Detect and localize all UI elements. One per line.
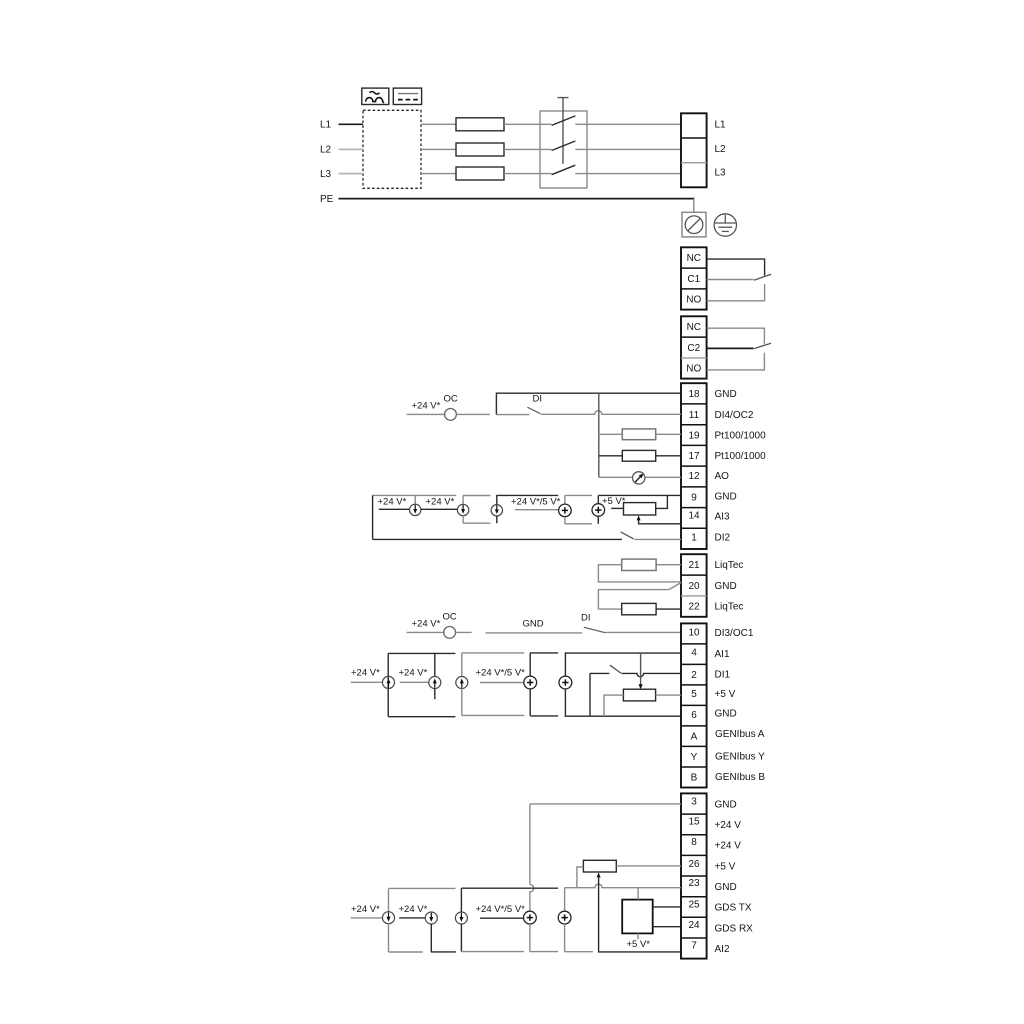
svg-text:20: 20 xyxy=(688,581,700,592)
svg-text:C1: C1 xyxy=(687,274,700,285)
svg-text:AI3: AI3 xyxy=(715,511,730,522)
svg-text:26: 26 xyxy=(688,859,700,870)
svg-text:OC: OC xyxy=(443,612,457,623)
svg-text:GND: GND xyxy=(523,618,544,629)
svg-text:18: 18 xyxy=(688,389,700,400)
svg-text:GENIbus A: GENIbus A xyxy=(715,729,765,740)
svg-text:+24 V*/5 V*: +24 V*/5 V* xyxy=(476,668,526,679)
svg-text:24: 24 xyxy=(688,920,700,931)
svg-text:B: B xyxy=(691,773,698,784)
svg-text:+24 V: +24 V xyxy=(715,820,742,831)
svg-text:9: 9 xyxy=(691,493,697,504)
svg-text:12: 12 xyxy=(688,471,700,482)
svg-text:LiqTec: LiqTec xyxy=(715,560,744,571)
svg-text:DI3/OC1: DI3/OC1 xyxy=(715,628,754,639)
svg-text:L2: L2 xyxy=(715,144,727,155)
svg-text:+24 V*: +24 V* xyxy=(351,904,380,915)
svg-text:4: 4 xyxy=(691,648,697,659)
svg-text:17: 17 xyxy=(688,451,700,462)
svg-text:23: 23 xyxy=(688,878,700,889)
svg-text:15: 15 xyxy=(688,817,700,828)
svg-text:22: 22 xyxy=(688,602,700,613)
svg-text:C2: C2 xyxy=(687,343,700,354)
svg-text:AI2: AI2 xyxy=(715,944,730,955)
svg-text:+24 V*: +24 V* xyxy=(378,497,407,508)
svg-text:5: 5 xyxy=(691,689,697,700)
svg-text:25: 25 xyxy=(688,899,700,910)
svg-text:8: 8 xyxy=(691,837,697,848)
svg-text:+24 V*: +24 V* xyxy=(412,618,441,629)
svg-text:+24 V*: +24 V* xyxy=(399,904,428,915)
svg-text:PE: PE xyxy=(320,194,334,205)
svg-text:GDS TX: GDS TX xyxy=(715,903,752,914)
svg-text:+24 V*: +24 V* xyxy=(412,400,441,411)
svg-text:NO: NO xyxy=(686,364,701,375)
svg-text:GND: GND xyxy=(715,799,737,810)
svg-text:10: 10 xyxy=(688,628,700,639)
svg-text:DI2: DI2 xyxy=(715,532,731,543)
svg-text:GND: GND xyxy=(715,882,737,893)
svg-text:+24 V*: +24 V* xyxy=(351,668,380,679)
svg-text:7: 7 xyxy=(691,941,697,952)
svg-text:A: A xyxy=(691,732,698,743)
svg-text:L2: L2 xyxy=(320,145,332,156)
svg-text:GENIbus B: GENIbus B xyxy=(715,772,765,783)
svg-text:11: 11 xyxy=(689,410,700,421)
svg-text:L3: L3 xyxy=(715,167,727,178)
svg-text:19: 19 xyxy=(688,431,700,442)
svg-text:DI: DI xyxy=(533,394,543,405)
svg-text:6: 6 xyxy=(691,710,697,721)
svg-text:+5 V: +5 V xyxy=(715,689,736,700)
svg-text:L1: L1 xyxy=(715,120,727,131)
svg-text:Y: Y xyxy=(691,752,698,763)
svg-text:NO: NO xyxy=(686,295,701,306)
svg-text:NC: NC xyxy=(687,322,701,333)
svg-text:+24 V*/5 V*: +24 V*/5 V* xyxy=(476,904,526,915)
svg-text:GND: GND xyxy=(715,581,737,592)
svg-text:AO: AO xyxy=(715,471,730,482)
svg-text:L3: L3 xyxy=(320,169,332,180)
svg-text:L1: L1 xyxy=(320,120,332,131)
svg-text:3: 3 xyxy=(691,796,697,807)
svg-text:+5 V*: +5 V* xyxy=(602,496,626,507)
svg-text:GND: GND xyxy=(715,492,737,503)
svg-text:+5 V*: +5 V* xyxy=(627,939,651,950)
svg-text:+24 V*: +24 V* xyxy=(399,668,428,679)
svg-text:NC: NC xyxy=(687,253,701,264)
svg-text:LiqTec: LiqTec xyxy=(715,602,744,613)
svg-text:1: 1 xyxy=(691,532,697,543)
svg-text:GDS RX: GDS RX xyxy=(715,923,754,934)
svg-text:GND: GND xyxy=(715,389,737,400)
svg-text:Pt100/1000: Pt100/1000 xyxy=(715,431,767,442)
svg-text:+24 V: +24 V xyxy=(715,841,742,852)
svg-text:GENIbus Y: GENIbus Y xyxy=(715,751,765,762)
svg-text:AI1: AI1 xyxy=(715,649,730,660)
svg-text:+5 V: +5 V xyxy=(715,861,736,872)
svg-text:+24 V*: +24 V* xyxy=(426,497,455,508)
svg-text:Pt100/1000: Pt100/1000 xyxy=(715,451,767,462)
svg-text:OC: OC xyxy=(444,394,458,405)
svg-text:DI4/OC2: DI4/OC2 xyxy=(715,410,754,421)
svg-text:21: 21 xyxy=(688,560,700,571)
svg-text:2: 2 xyxy=(691,670,697,681)
svg-text:GND: GND xyxy=(715,708,737,719)
svg-text:+24 V*/5 V*: +24 V*/5 V* xyxy=(511,497,561,508)
svg-text:DI: DI xyxy=(581,612,591,623)
svg-text:DI1: DI1 xyxy=(715,669,731,680)
svg-text:14: 14 xyxy=(688,511,700,522)
